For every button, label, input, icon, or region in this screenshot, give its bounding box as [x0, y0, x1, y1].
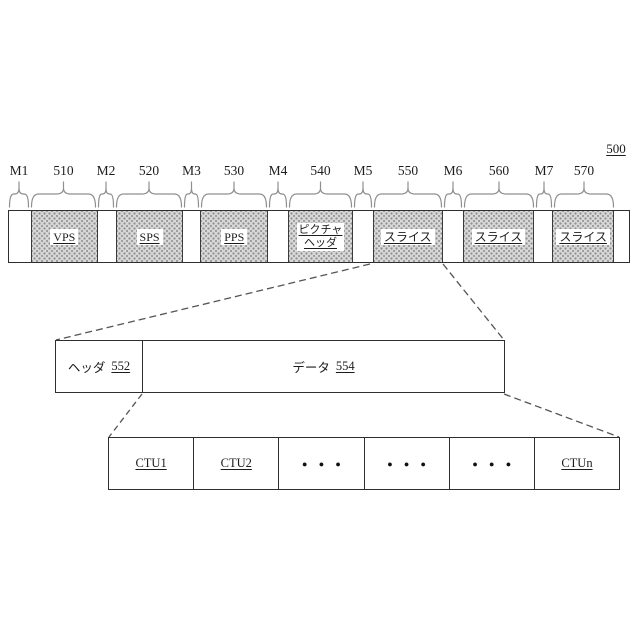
brace-M6: [445, 182, 462, 207]
ctu-cell-dots-2: ● ● ●: [365, 438, 450, 489]
slice-header-label: ヘッダ: [68, 357, 106, 376]
ref-label-m3: M3: [183, 162, 200, 179]
brace-M1: [10, 182, 29, 207]
ctu-cell-dots-1: ● ● ●: [279, 438, 364, 489]
ref-label-510: 510: [30, 162, 97, 179]
ellipsis-dots: ● ● ●: [302, 459, 341, 469]
slice-data-ref: 554: [336, 359, 355, 374]
ctu1-label: CTU1: [135, 456, 166, 471]
ctun-label: CTUn: [561, 456, 592, 471]
expansion-lines-svg: [0, 0, 640, 640]
ctu-cell-1: CTU1: [109, 438, 194, 489]
brace-M4: [270, 182, 287, 207]
figure-number: 500: [601, 141, 631, 157]
ref-label-560: 560: [463, 162, 535, 179]
slice-detail-box: ヘッダ 552 データ 554: [55, 340, 505, 393]
bar-marker-m4: [268, 211, 288, 262]
bar-segment-sps: SPS: [116, 211, 184, 262]
brace-M7: [537, 182, 552, 207]
reference-label-row: M1 510 M2 520 M3 530 M4 540 M5 550 M6 56…: [8, 162, 630, 179]
expansion-line-slice-right: [443, 264, 504, 340]
expansion-line-slice-left: [56, 264, 370, 340]
ellipsis-dots: ● ● ●: [387, 459, 426, 469]
bar-marker-m5: [353, 211, 373, 262]
bar-segment-slice-550: スライス: [373, 211, 443, 262]
ref-label-570: 570: [553, 162, 615, 179]
bar-marker-m2: [98, 211, 116, 262]
braces-svg: [8, 181, 630, 209]
ctu-cell-2: CTU2: [194, 438, 279, 489]
brace-570: [555, 182, 614, 207]
bar-end-padding: [614, 211, 629, 262]
bar-segment-vps: VPS: [31, 211, 98, 262]
picture-header-label-line1: ピクチャ: [299, 224, 343, 236]
pps-label: PPS: [224, 230, 244, 244]
ref-label-m5: M5: [353, 162, 373, 179]
brace-M2: [99, 182, 114, 207]
expansion-line-data-left: [109, 394, 142, 437]
ctu-cell-n: CTUn: [535, 438, 619, 489]
patent-figure-bitstream-diagram: 500 M1 510 M2 520 M3 530 M4 540 M5 550 M…: [0, 0, 640, 640]
brace-520: [117, 182, 182, 207]
expansion-line-data-right: [504, 394, 619, 437]
vps-label: VPS: [53, 230, 75, 244]
slice-header-cell: ヘッダ 552: [56, 341, 143, 392]
bar-segment-pps: PPS: [200, 211, 268, 262]
bar-segment-slice-570: スライス: [552, 211, 614, 262]
slice-560-label: スライス: [475, 230, 523, 244]
bar-segment-picture-header: ピクチャ ヘッダ: [288, 211, 353, 262]
ref-label-m7: M7: [535, 162, 553, 179]
bar-segment-slice-560: スライス: [463, 211, 535, 262]
ctu2-label: CTU2: [221, 456, 252, 471]
brace-M3: [185, 182, 199, 207]
brace-530: [202, 182, 267, 207]
ref-label-540: 540: [288, 162, 353, 179]
ctu-cell-dots-3: ● ● ●: [450, 438, 535, 489]
ref-label-m2: M2: [97, 162, 115, 179]
slice-header-ref: 552: [111, 359, 130, 374]
brace-M5: [355, 182, 372, 207]
ref-label-550: 550: [373, 162, 443, 179]
brace-560: [465, 182, 534, 207]
ref-label-m6: M6: [443, 162, 463, 179]
ref-label-m4: M4: [268, 162, 288, 179]
ref-label-530: 530: [200, 162, 268, 179]
bar-marker-m3: [183, 211, 200, 262]
ellipsis-dots: ● ● ●: [472, 459, 511, 469]
picture-header-label-line2: ヘッダ: [304, 237, 337, 249]
brace-550: [375, 182, 442, 207]
slice-data-cell: データ 554: [143, 341, 504, 392]
bar-marker-m1: [9, 211, 31, 262]
brace-540: [290, 182, 352, 207]
bar-marker-m7: [534, 211, 552, 262]
ctu-detail-box: CTU1 CTU2 ● ● ● ● ● ● ● ● ● CTUn: [108, 437, 620, 490]
ref-label-520: 520: [115, 162, 183, 179]
slice-570-label: スライス: [559, 230, 607, 244]
sps-label: SPS: [140, 230, 160, 244]
nal-stream-bar: VPS SPS PPS ピクチャ ヘッダ スライス スライス スライス: [8, 210, 630, 263]
bar-marker-m6: [443, 211, 463, 262]
slice-550-label: スライス: [384, 230, 432, 244]
ref-label-m1: M1: [8, 162, 30, 179]
slice-data-label: データ: [292, 357, 330, 376]
brace-510: [32, 182, 96, 207]
